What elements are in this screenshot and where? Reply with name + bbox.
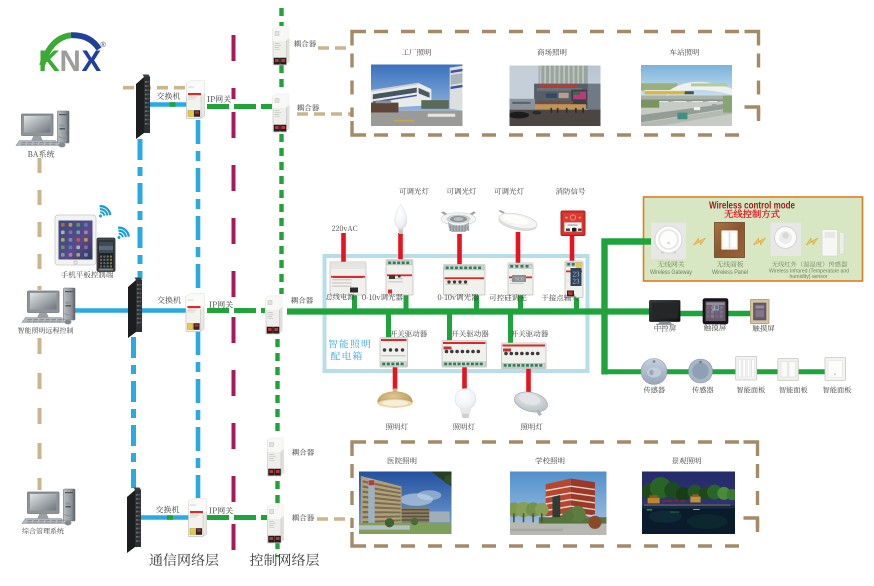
svg-text:N: N — [60, 45, 81, 78]
svg-text:K: K — [39, 45, 61, 78]
svg-text:®: ® — [101, 41, 107, 49]
svg-text:Wireless Panel: Wireless Panel — [712, 269, 748, 276]
svg-text:X: X — [82, 45, 102, 78]
svg-text:Wireless Gateway: Wireless Gateway — [650, 269, 693, 276]
svg-text:Wireless control mode: Wireless control mode — [709, 201, 795, 212]
svg-text:humidity) sensor: humidity) sensor — [790, 274, 828, 280]
